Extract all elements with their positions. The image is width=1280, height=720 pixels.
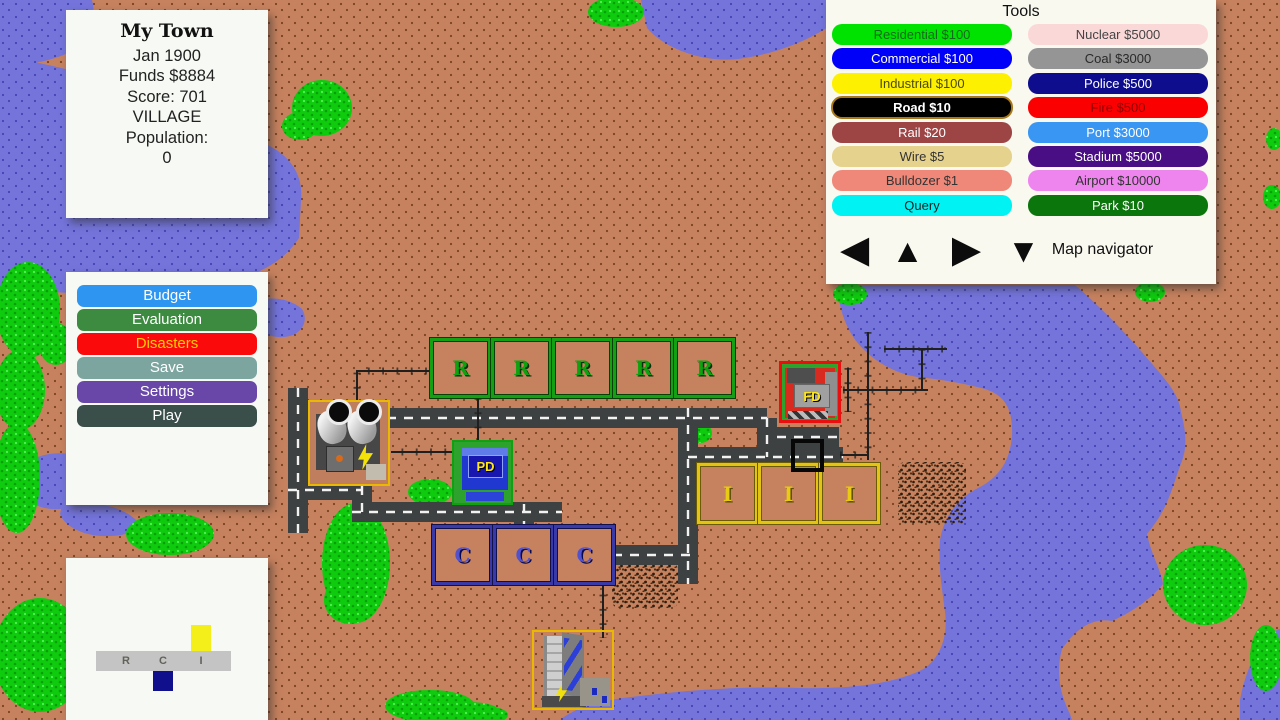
zone-letter: R [452,358,469,378]
zone-letter: R [696,358,713,378]
city-class-text: VILLAGE [66,107,268,127]
power-plant-pavement [366,464,386,480]
rci-letter-r: R [122,655,130,667]
menu-button-disasters[interactable]: Disasters [77,333,257,355]
industrial-pavement [580,678,610,706]
road-tool-cursor [791,439,824,472]
zone-r[interactable]: R [674,338,735,398]
menu-button-save[interactable]: Save [77,357,257,379]
zone-c[interactable]: C [493,525,554,585]
smokestack-icon [356,399,382,425]
police-sign: PD [468,455,503,478]
tool-button-commercial[interactable]: Commercial $100 [832,48,1012,69]
police-station[interactable]: PD [452,440,513,505]
tool-button-park[interactable]: Park $10 [1028,195,1208,216]
tool-button-fire[interactable]: Fire $500 [1028,97,1208,118]
game-screen: RRRRRIIICCC PD FD My Town [0,0,1280,720]
police-steps [466,492,504,501]
tool-button-coal[interactable]: Coal $3000 [1028,48,1208,69]
zone-c[interactable]: C [432,525,493,585]
fire-sign: FD [794,384,830,408]
funds-text: Funds $8884 [66,66,268,86]
map-navigator: ◀▲▶▼Map navigator [840,224,1153,276]
date-text: Jan 1900 [66,46,268,66]
tool-button-road[interactable]: Road $10 [832,97,1012,118]
zone-i[interactable]: I [758,463,819,524]
tool-button-wire[interactable]: Wire $5 [832,146,1012,167]
zone-r[interactable]: R [552,338,613,398]
zone-letter: C [455,545,471,565]
map-navigator-left-icon[interactable]: ◀ [840,231,869,269]
atom-icon [326,446,354,472]
tool-button-rail[interactable]: Rail $20 [832,122,1012,143]
zone-letter: C [577,545,593,565]
zone-letter: C [516,545,532,565]
police-label: PD [476,459,494,474]
industrial-building[interactable] [532,630,614,710]
map-navigator-label: Map navigator [1052,241,1153,259]
coal-power-plant[interactable] [308,400,390,486]
city-info-panel: My Town Jan 1900 Funds $8884 Score: 701 … [66,10,268,218]
tool-button-port[interactable]: Port $3000 [1028,122,1208,143]
zone-letter: R [574,358,591,378]
tool-button-airport[interactable]: Airport $10000 [1028,170,1208,191]
rci-demand-c [153,671,173,691]
tools-title: Tools [826,3,1216,21]
tool-button-stadium[interactable]: Stadium $5000 [1028,146,1208,167]
menu-button-settings[interactable]: Settings [77,381,257,403]
fire-driveway [788,411,828,419]
tools-column-right: Nuclear $5000Coal $3000Police $500Fire $… [1028,24,1208,216]
rci-demand-i [191,625,211,651]
score-text: Score: 701 [66,87,268,107]
menu-button-evaluation[interactable]: Evaluation [77,309,257,331]
rci-letter-c: C [159,655,167,667]
zone-r[interactable]: R [613,338,674,398]
tool-button-nuclear[interactable]: Nuclear $5000 [1028,24,1208,45]
tool-button-bulldozer[interactable]: Bulldozer $1 [832,170,1012,191]
smokestack-icon [326,399,352,425]
tool-button-residential[interactable]: Residential $100 [832,24,1012,45]
map-navigator-up-icon[interactable]: ▲ [891,234,924,267]
fire-roof [787,368,815,383]
tool-button-query[interactable]: Query [832,195,1012,216]
city-name: My Town [66,20,268,42]
fire-station[interactable]: FD [779,361,841,423]
menu-panel: BudgetEvaluationDisastersSaveSettingsPla… [66,272,268,505]
fire-label: FD [803,389,820,404]
tool-button-industrial[interactable]: Industrial $100 [832,73,1012,94]
zone-c[interactable]: C [554,525,615,585]
rci-letter-i: I [199,655,202,667]
zone-letter: R [635,358,652,378]
menu-button-budget[interactable]: Budget [77,285,257,307]
zone-r[interactable]: R [430,338,491,398]
map-navigator-right-icon[interactable]: ▶ [952,231,981,269]
zone-i[interactable]: I [819,463,880,524]
menu-buttons: BudgetEvaluationDisastersSaveSettingsPla… [66,272,268,440]
zone-letter: R [513,358,530,378]
tools-panel: Tools Residential $100Commercial $100Ind… [826,0,1216,284]
map-navigator-down-icon[interactable]: ▼ [1007,234,1040,267]
tool-button-police[interactable]: Police $500 [1028,73,1208,94]
zone-i[interactable]: I [697,463,758,524]
zone-r[interactable]: R [491,338,552,398]
population-value: 0 [66,148,268,168]
zone-letter: I [784,484,793,504]
rci-demand-panel: RCI [66,558,268,720]
population-label: Population: [66,128,268,148]
zone-letter: I [723,484,732,504]
tools-column-left: Residential $100Commercial $100Industria… [832,24,1012,216]
menu-button-play[interactable]: Play [77,405,257,427]
zone-letter: I [845,484,854,504]
